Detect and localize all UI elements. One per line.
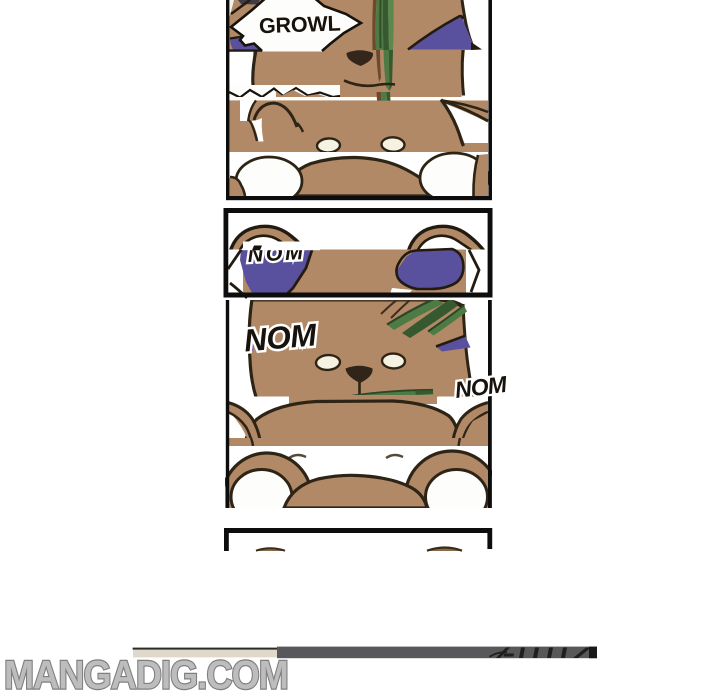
- svg-text:MANGADIG.COM: MANGADIG.COM: [4, 654, 288, 698]
- svg-text:GROWL: GROWL: [259, 11, 341, 38]
- svg-text:NOM: NOM: [243, 316, 319, 358]
